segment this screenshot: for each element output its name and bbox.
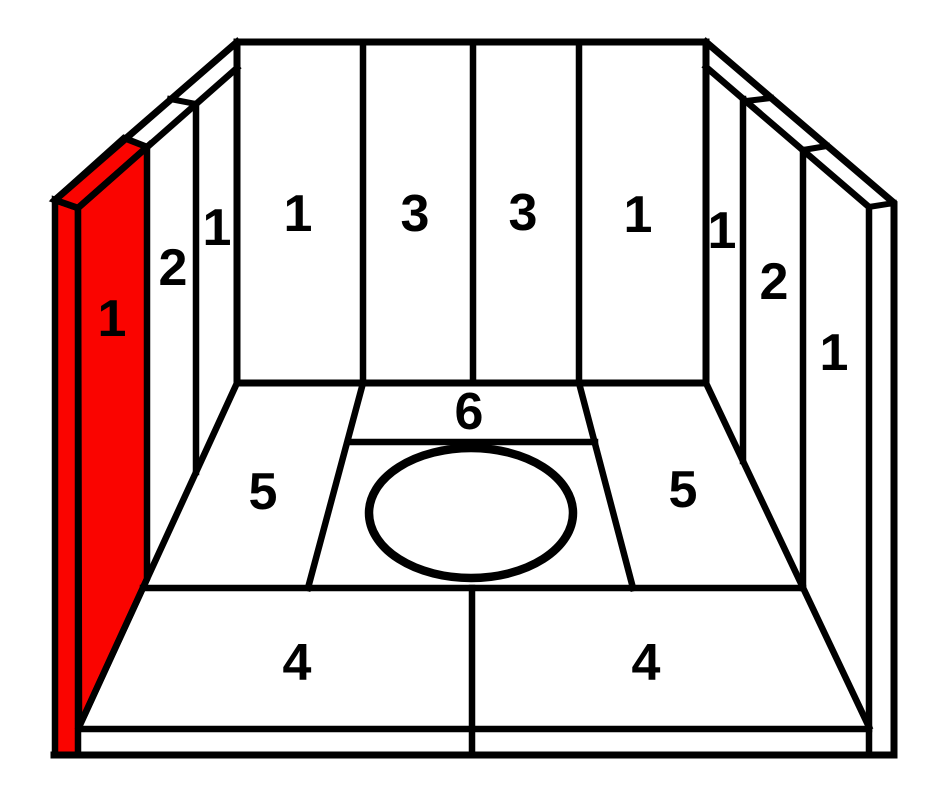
label-floor-front-left-piece: 4 [283,634,312,692]
label-right-wall-front-brick: 1 [820,324,849,382]
left-wall-top-joint [170,99,196,104]
right-wall-top-inner-edge [706,67,869,755]
label-left-wall-middle-brick: 2 [159,239,188,297]
floor-hole-ellipse [369,448,573,578]
label-floor-front-right-piece: 4 [632,634,661,692]
label-floor-right-piece: 5 [669,461,698,519]
label-back-wall-left-panel: 1 [284,185,313,243]
label-floor-left-piece: 5 [249,463,278,521]
floor-center-piece-right-edge [579,383,633,588]
right-wall-front-cap [869,203,894,207]
highlighted-brick-main-face [78,147,147,727]
label-left-wall-front-brick: 1 [98,290,127,348]
label-back-wall-right-panel: 1 [624,186,653,244]
label-right-wall-middle-brick: 2 [760,253,789,311]
highlighted-brick-front-edge-face [55,200,78,755]
right-wall-top-joint-back [746,98,771,101]
label-floor-back-strip: 6 [455,383,484,441]
label-left-wall-back-brick: 1 [203,199,232,257]
right-wall-floor-junction [706,383,869,727]
label-back-wall-center-left-panel: 3 [401,185,430,243]
label-back-wall-center-right-panel: 3 [509,184,538,242]
label-right-wall-back-brick: 1 [708,202,737,260]
firebox-diagram-canvas: 1 2 1 1 3 3 1 1 2 1 6 5 5 4 4 [0,0,946,809]
firebox-diagram: 1 2 1 1 3 3 1 1 2 1 6 5 5 4 4 [0,0,946,809]
left-wall-top-inner-edge [78,68,237,208]
right-wall-top-joint-front [803,146,827,150]
floor-center-piece-left-edge [308,383,363,588]
